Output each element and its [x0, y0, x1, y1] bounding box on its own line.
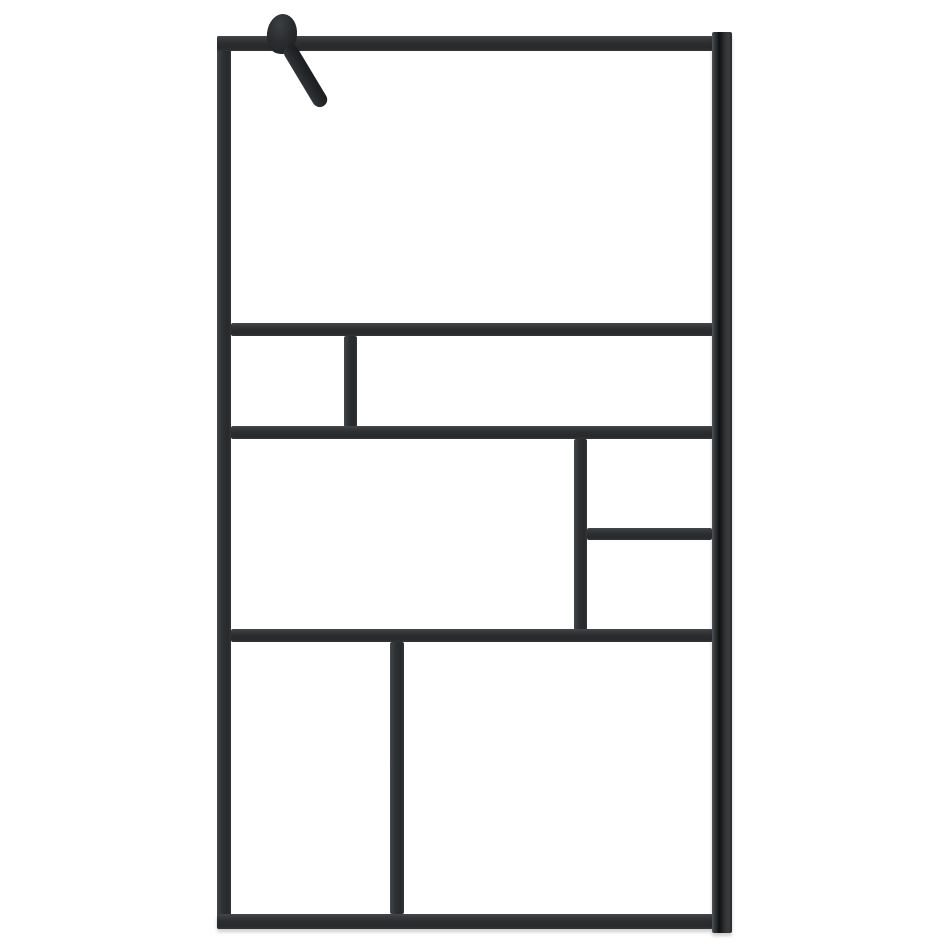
divider-v-row4: [390, 642, 404, 914]
left-stile: [217, 36, 231, 929]
divider-h-right-col: [587, 528, 712, 540]
support-arm: [281, 42, 330, 110]
wall-profile: [712, 32, 732, 933]
divider-v-row3: [574, 439, 587, 630]
divider-v-row2: [344, 336, 357, 427]
shower-screen: [0, 0, 947, 947]
bottom-rail: [217, 914, 713, 929]
product-photo: [0, 0, 947, 947]
divider-h-upper: [231, 323, 713, 336]
divider-h-middle: [231, 426, 713, 439]
divider-h-lower: [231, 629, 713, 642]
